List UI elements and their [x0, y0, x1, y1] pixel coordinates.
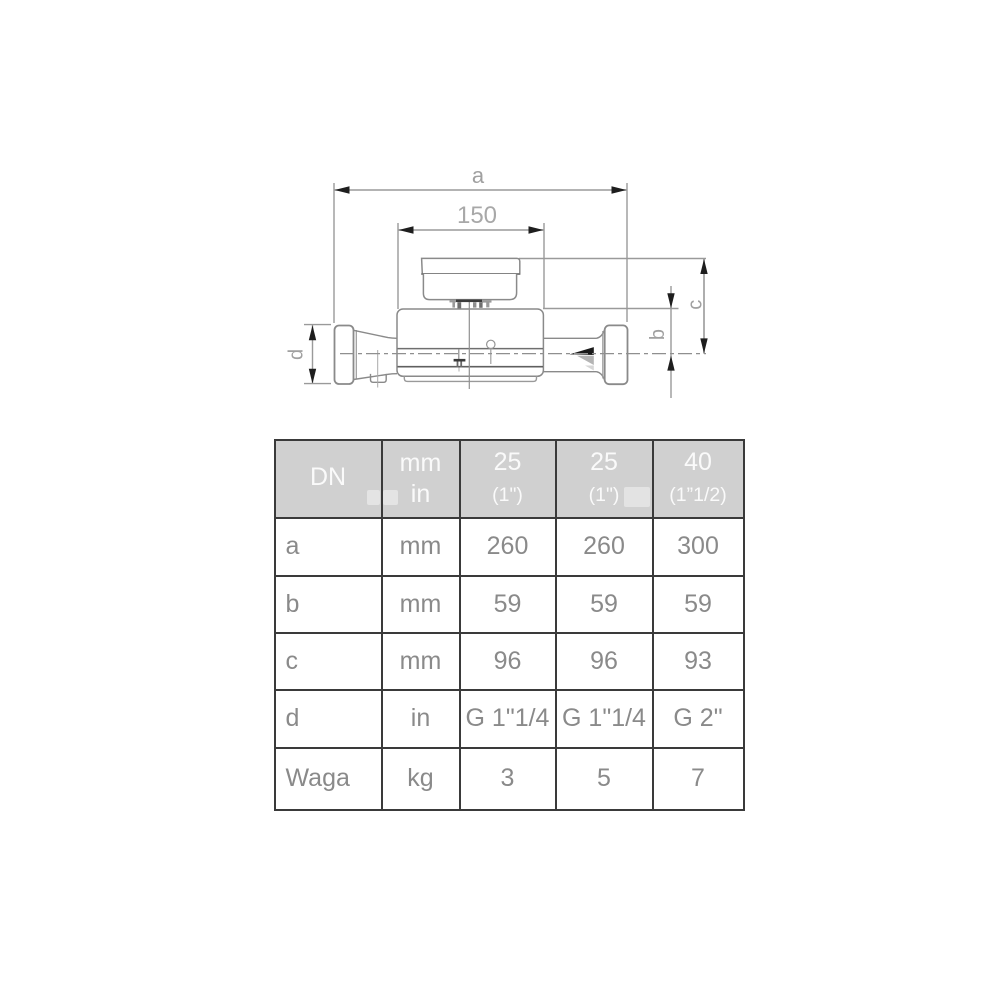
svg-text:b: b: [647, 329, 669, 340]
svg-text:a: a: [472, 163, 485, 188]
svg-text:d: d: [286, 349, 308, 360]
svg-text:150: 150: [457, 202, 497, 229]
svg-text:c: c: [685, 300, 707, 310]
